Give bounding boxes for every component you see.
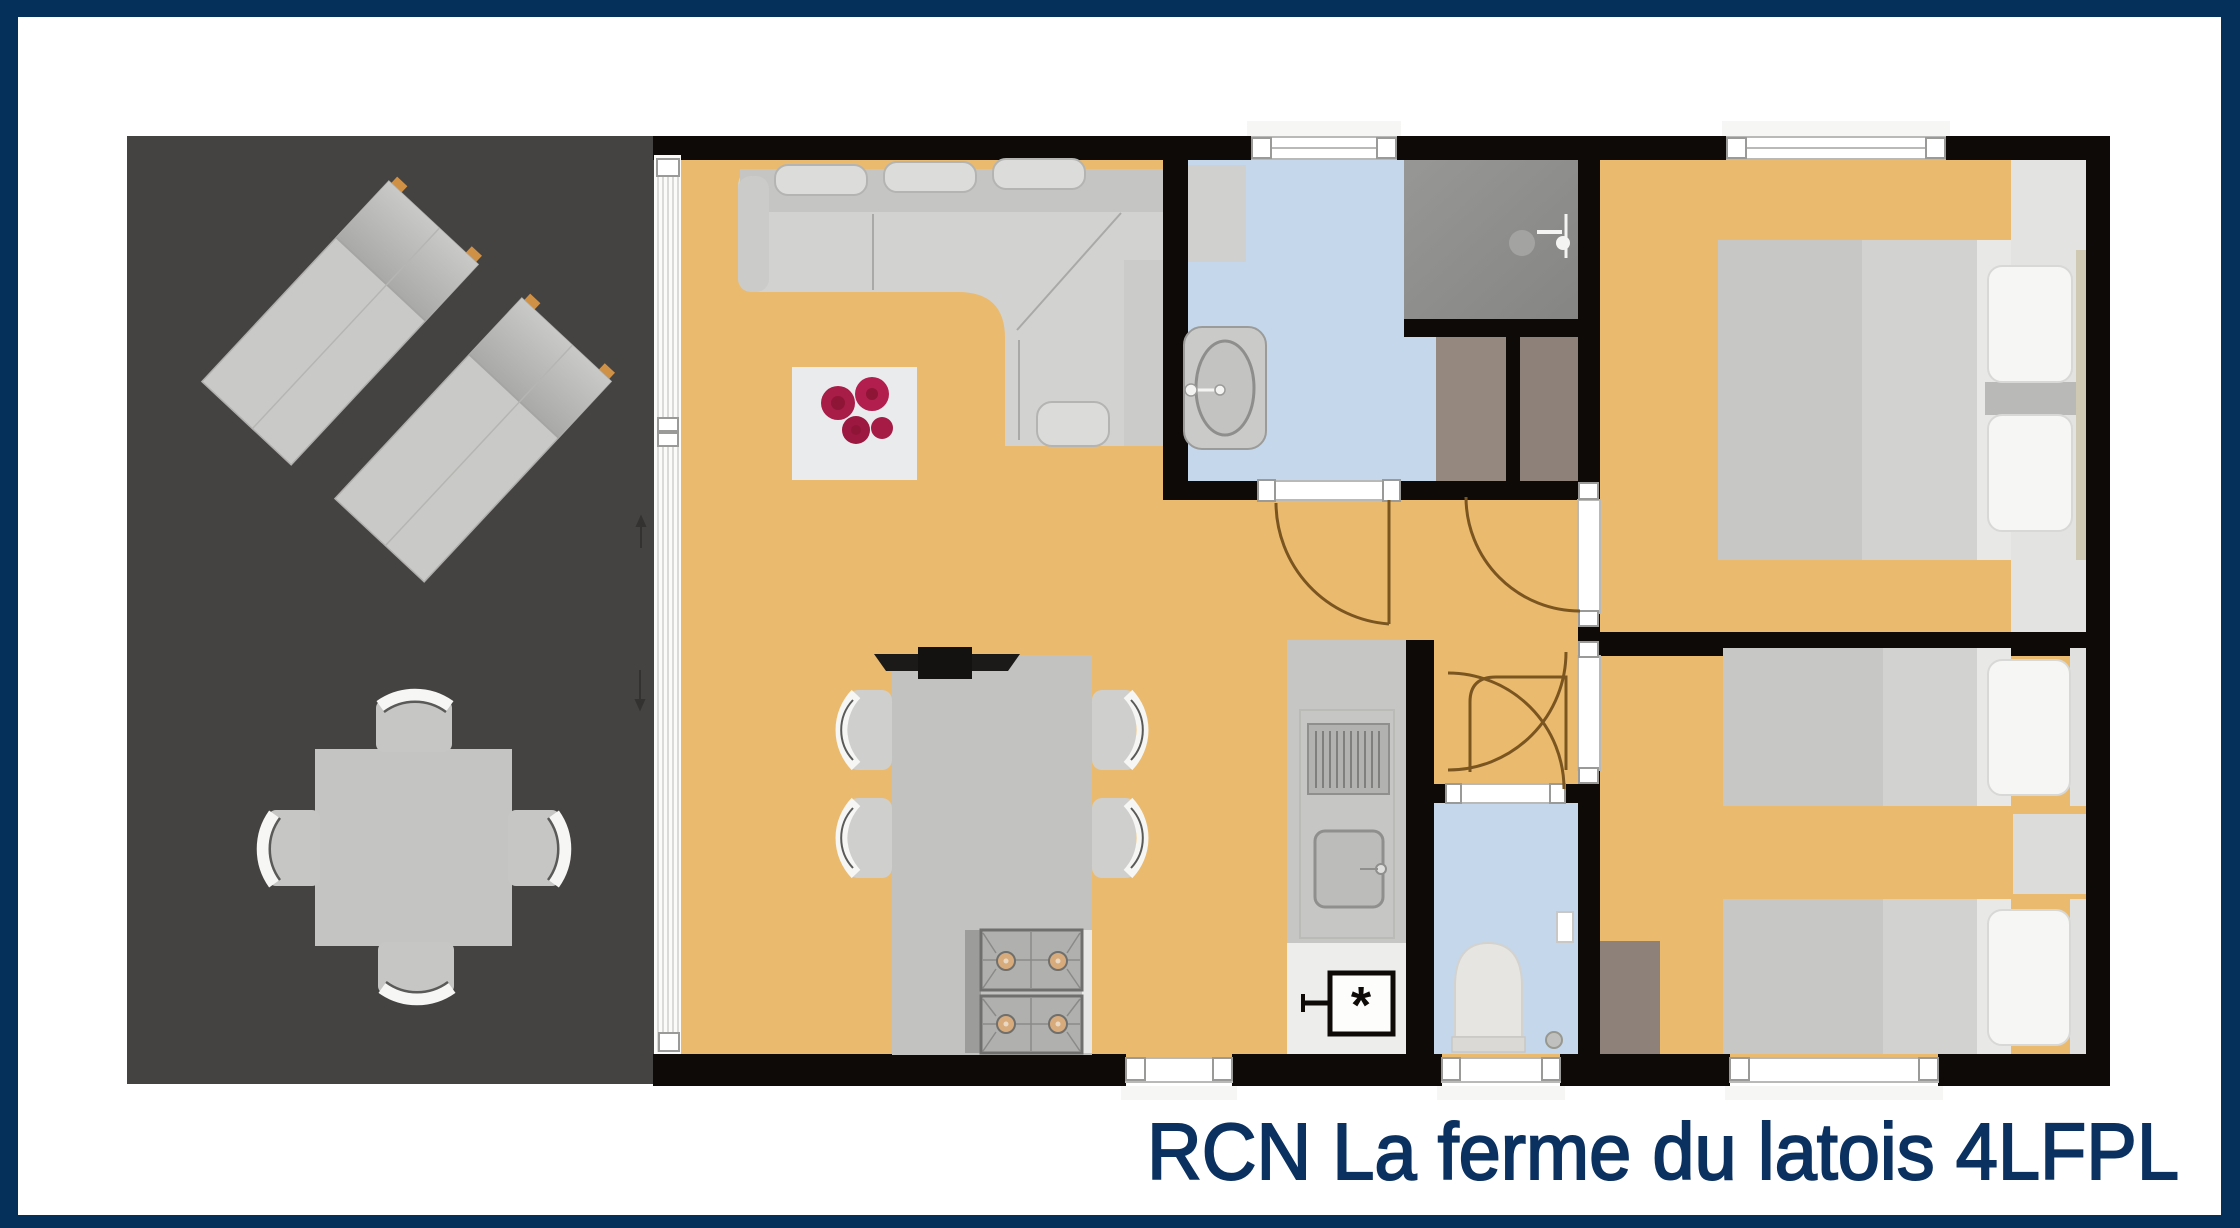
svg-text:*: * (1351, 977, 1372, 1035)
svg-text:RCN La ferme du latois 4LFPL: RCN La ferme du latois 4LFPL (1147, 1107, 2179, 1196)
